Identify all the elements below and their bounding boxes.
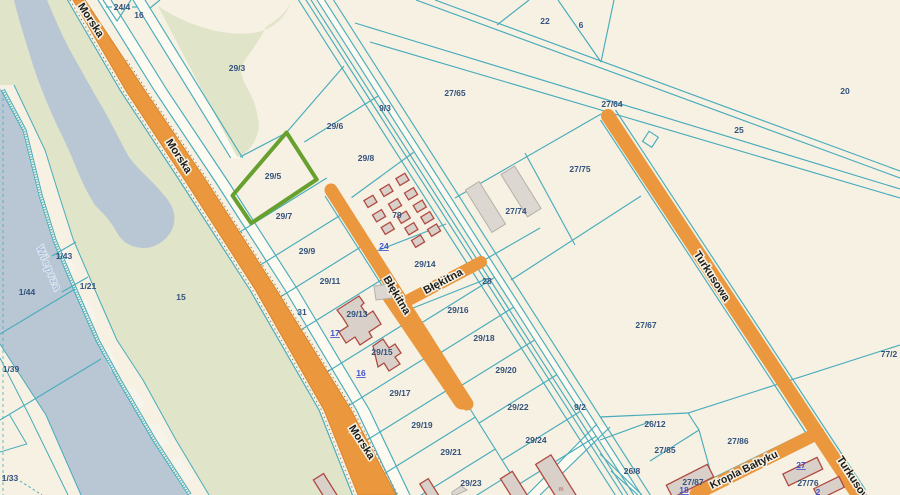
svg-text:29/20: 29/20 xyxy=(495,365,517,375)
svg-text:18: 18 xyxy=(679,485,689,495)
svg-text:29/7: 29/7 xyxy=(276,211,293,221)
svg-text:29/18: 29/18 xyxy=(473,333,495,343)
svg-text:27/65: 27/65 xyxy=(444,88,466,98)
svg-text:28: 28 xyxy=(482,276,492,286)
svg-text:79: 79 xyxy=(392,210,402,220)
svg-text:m: m xyxy=(559,487,564,493)
svg-text:15: 15 xyxy=(176,292,186,302)
svg-text:27: 27 xyxy=(796,460,806,470)
svg-text:29/5: 29/5 xyxy=(265,171,282,181)
svg-text:31: 31 xyxy=(297,307,307,317)
svg-text:29/15: 29/15 xyxy=(371,347,393,357)
svg-text:1/33: 1/33 xyxy=(2,473,19,483)
svg-text:17: 17 xyxy=(330,328,340,338)
svg-text:1/43: 1/43 xyxy=(56,251,73,261)
svg-text:29/21: 29/21 xyxy=(440,447,462,457)
svg-text:29/11: 29/11 xyxy=(320,276,341,286)
svg-text:6: 6 xyxy=(579,20,584,30)
svg-text:29/24: 29/24 xyxy=(525,435,547,445)
svg-text:29/19: 29/19 xyxy=(411,420,433,430)
svg-text:9/2: 9/2 xyxy=(574,402,586,412)
svg-text:24/4: 24/4 xyxy=(114,2,131,12)
svg-text:16: 16 xyxy=(134,10,144,20)
svg-text:29/6: 29/6 xyxy=(327,121,344,131)
svg-text:29/3: 29/3 xyxy=(229,63,246,73)
svg-text:24: 24 xyxy=(379,241,389,251)
svg-text:2: 2 xyxy=(816,487,821,495)
svg-text:25: 25 xyxy=(734,125,744,135)
svg-text:26/12: 26/12 xyxy=(644,419,666,429)
svg-text:27/64: 27/64 xyxy=(601,99,623,109)
svg-text:27/75: 27/75 xyxy=(569,164,591,174)
svg-text:26/8: 26/8 xyxy=(624,466,641,476)
svg-text:29/23: 29/23 xyxy=(460,478,482,488)
svg-text:27/67: 27/67 xyxy=(635,320,657,330)
svg-text:29/16: 29/16 xyxy=(447,305,469,315)
svg-text:1/21: 1/21 xyxy=(80,281,97,291)
svg-text:16: 16 xyxy=(356,368,366,378)
svg-text:27/74: 27/74 xyxy=(505,206,527,216)
svg-text:29/17: 29/17 xyxy=(389,388,411,398)
svg-text:1/44: 1/44 xyxy=(19,287,36,297)
svg-text:9/3: 9/3 xyxy=(379,103,391,113)
svg-text:27/85: 27/85 xyxy=(654,445,676,455)
svg-text:29/13: 29/13 xyxy=(346,309,368,319)
svg-text:29/9: 29/9 xyxy=(299,246,316,256)
svg-text:77/2: 77/2 xyxy=(881,349,898,359)
svg-text:27/86: 27/86 xyxy=(727,436,749,446)
svg-text:29/22: 29/22 xyxy=(507,402,529,412)
svg-text:29/8: 29/8 xyxy=(358,153,375,163)
svg-text:20: 20 xyxy=(840,86,850,96)
svg-text:1/39: 1/39 xyxy=(3,364,20,374)
svg-text:29/14: 29/14 xyxy=(414,259,436,269)
svg-text:22: 22 xyxy=(540,16,550,26)
